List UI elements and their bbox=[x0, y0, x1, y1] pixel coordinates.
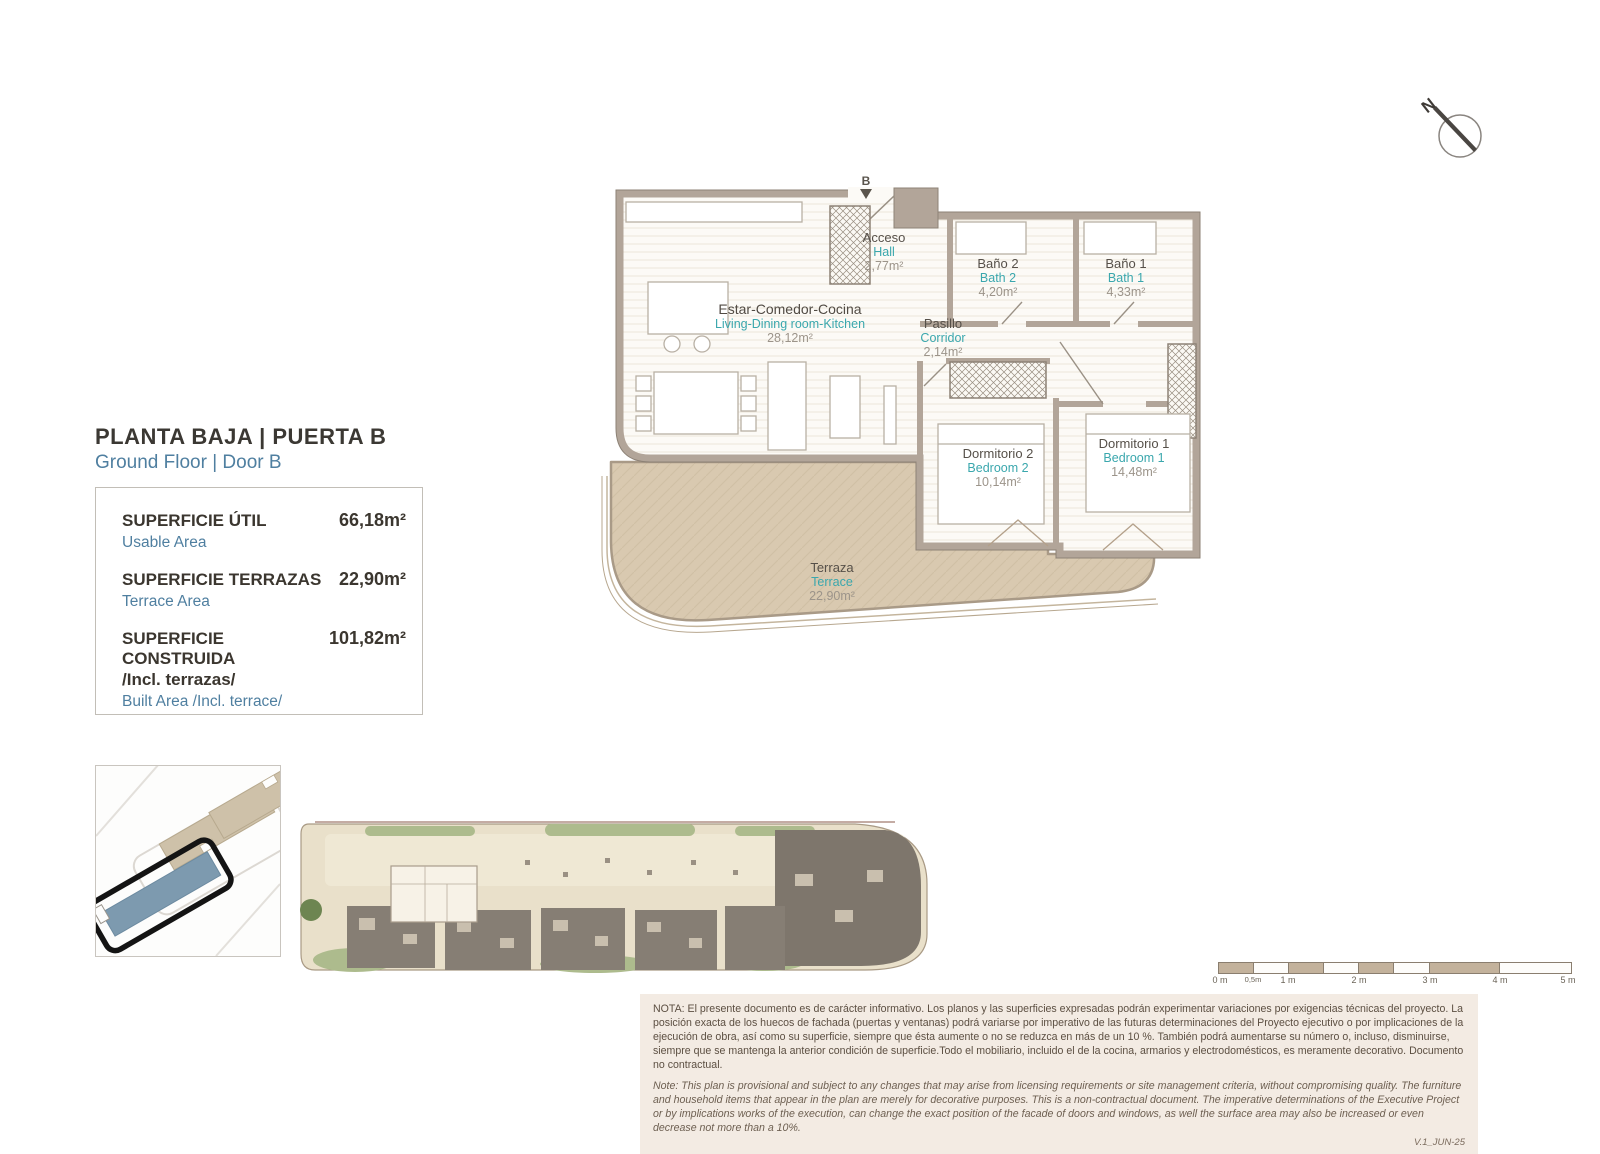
area-row-built: SUPERFICIE CONSTRUIDA 101,82m² /Incl. te… bbox=[122, 628, 406, 711]
terrace-value: 22,90m² bbox=[339, 569, 406, 590]
svg-text:Corridor: Corridor bbox=[920, 331, 965, 345]
bedroom2-closet bbox=[950, 362, 1046, 398]
usable-label-en: Usable Area bbox=[122, 534, 406, 552]
scale-bar-track bbox=[1218, 962, 1572, 974]
svg-text:2,77m²: 2,77m² bbox=[865, 259, 904, 273]
page-subtitle: Ground Floor | Door B bbox=[95, 452, 282, 474]
floor-plan-page: { "header": { "title_es": "PLANTA BAJA |… bbox=[0, 0, 1600, 1130]
compass-north-label: N bbox=[1418, 94, 1439, 117]
scale-label-3m: 3 m bbox=[1422, 975, 1437, 985]
room-label-corridor: Pasillo Corridor 2,14m² bbox=[920, 316, 965, 359]
usable-label-es: SUPERFICIE ÚTIL bbox=[122, 511, 267, 531]
svg-text:Baño 1: Baño 1 bbox=[1105, 256, 1146, 271]
entry-marker-label: B bbox=[862, 176, 871, 188]
shower-bath2 bbox=[956, 222, 1026, 254]
svg-text:2,14m²: 2,14m² bbox=[924, 345, 963, 359]
svg-text:Hall: Hall bbox=[873, 245, 895, 259]
svg-text:28,12m²: 28,12m² bbox=[767, 331, 813, 345]
scale-bar: 0 m 0,5m 1 m 2 m 3 m 4 m 5 m bbox=[1218, 962, 1572, 988]
building-overview-plan bbox=[295, 814, 931, 974]
room-label-bath2: Baño 2 Bath 2 4,20m² bbox=[977, 256, 1018, 299]
svg-text:14,48m²: 14,48m² bbox=[1111, 465, 1157, 479]
scale-label-5m: 5 m bbox=[1560, 975, 1575, 985]
svg-text:Pasillo: Pasillo bbox=[924, 316, 962, 331]
kitchen-stool bbox=[694, 336, 710, 352]
built-value: 101,82m² bbox=[329, 628, 406, 649]
sofa-2 bbox=[830, 376, 860, 438]
svg-text:Dormitorio 2: Dormitorio 2 bbox=[963, 446, 1034, 461]
svg-text:22,90m²: 22,90m² bbox=[809, 589, 855, 603]
tv-unit bbox=[884, 386, 896, 444]
scale-label-0m: 0 m bbox=[1212, 975, 1227, 985]
apartment-floor-plan: B Acceso Hall 2,77m² Baño 2 Bath 2 4,20m… bbox=[598, 176, 1220, 668]
north-compass-icon: N bbox=[1408, 86, 1504, 182]
dining-chair bbox=[636, 396, 651, 411]
svg-text:Bath 1: Bath 1 bbox=[1108, 271, 1144, 285]
page-title: PLANTA BAJA | PUERTA B bbox=[95, 424, 386, 450]
scale-label-1m: 1 m bbox=[1280, 975, 1295, 985]
shower-bath1 bbox=[1084, 222, 1156, 254]
dining-chair bbox=[741, 396, 756, 411]
svg-text:Terrace: Terrace bbox=[811, 575, 853, 589]
room-label-terrace: Terraza Terrace 22,90m² bbox=[809, 560, 855, 603]
dining-chair bbox=[636, 416, 651, 431]
room-label-bath1: Baño 1 Bath 1 4,33m² bbox=[1105, 256, 1146, 299]
scale-label-2m: 2 m bbox=[1351, 975, 1366, 985]
svg-text:Living-Dining room-Kitchen: Living-Dining room-Kitchen bbox=[715, 317, 865, 331]
svg-text:Acceso: Acceso bbox=[863, 230, 906, 245]
built-label-es2: /Incl. terrazas/ bbox=[122, 670, 406, 690]
svg-text:Bedroom 1: Bedroom 1 bbox=[1103, 451, 1164, 465]
kitchen-counter bbox=[626, 202, 802, 222]
note-version: V.1_JUN-25 bbox=[653, 1137, 1465, 1148]
dining-table bbox=[654, 372, 738, 434]
built-label-en: Built Area /Incl. terrace/ bbox=[122, 693, 406, 711]
area-row-terrace: SUPERFICIE TERRAZAS 22,90m² Terrace Area bbox=[122, 569, 406, 611]
svg-text:Terraza: Terraza bbox=[810, 560, 854, 575]
overview-highlighted-unit bbox=[391, 866, 477, 922]
dining-chair bbox=[741, 416, 756, 431]
svg-text:Estar-Comedor-Cocina: Estar-Comedor-Cocina bbox=[718, 301, 861, 317]
terrace-label-en: Terrace Area bbox=[122, 593, 406, 611]
kitchen-stool bbox=[664, 336, 680, 352]
svg-text:4,20m²: 4,20m² bbox=[979, 285, 1018, 299]
svg-text:Bedroom 2: Bedroom 2 bbox=[967, 461, 1028, 475]
areas-table: SUPERFICIE ÚTIL 66,18m² Usable Area SUPE… bbox=[95, 487, 423, 715]
note-spanish: NOTA: El presente documento es de caráct… bbox=[653, 1003, 1465, 1073]
built-label-es: SUPERFICIE CONSTRUIDA bbox=[122, 629, 329, 669]
area-row-usable: SUPERFICIE ÚTIL 66,18m² Usable Area bbox=[122, 510, 406, 552]
scale-label-05m: 0,5m bbox=[1245, 975, 1262, 984]
terrace-label-es: SUPERFICIE TERRAZAS bbox=[122, 570, 321, 590]
svg-text:10,14m²: 10,14m² bbox=[975, 475, 1021, 489]
svg-text:Baño 2: Baño 2 bbox=[977, 256, 1018, 271]
usable-value: 66,18m² bbox=[339, 510, 406, 531]
dining-chair bbox=[636, 376, 651, 391]
svg-text:Dormitorio 1: Dormitorio 1 bbox=[1099, 436, 1170, 451]
svg-text:Bath 2: Bath 2 bbox=[980, 271, 1016, 285]
site-location-minimap bbox=[95, 765, 281, 957]
note-english: Note: This plan is provisional and subje… bbox=[653, 1080, 1465, 1136]
overview-dark-block-right bbox=[775, 830, 921, 966]
sofa bbox=[768, 362, 806, 450]
scale-label-4m: 4 m bbox=[1492, 975, 1507, 985]
entry-wall-block bbox=[894, 188, 938, 228]
dining-chair bbox=[741, 376, 756, 391]
overview-palm-tree bbox=[300, 899, 322, 921]
svg-text:4,33m²: 4,33m² bbox=[1107, 285, 1146, 299]
